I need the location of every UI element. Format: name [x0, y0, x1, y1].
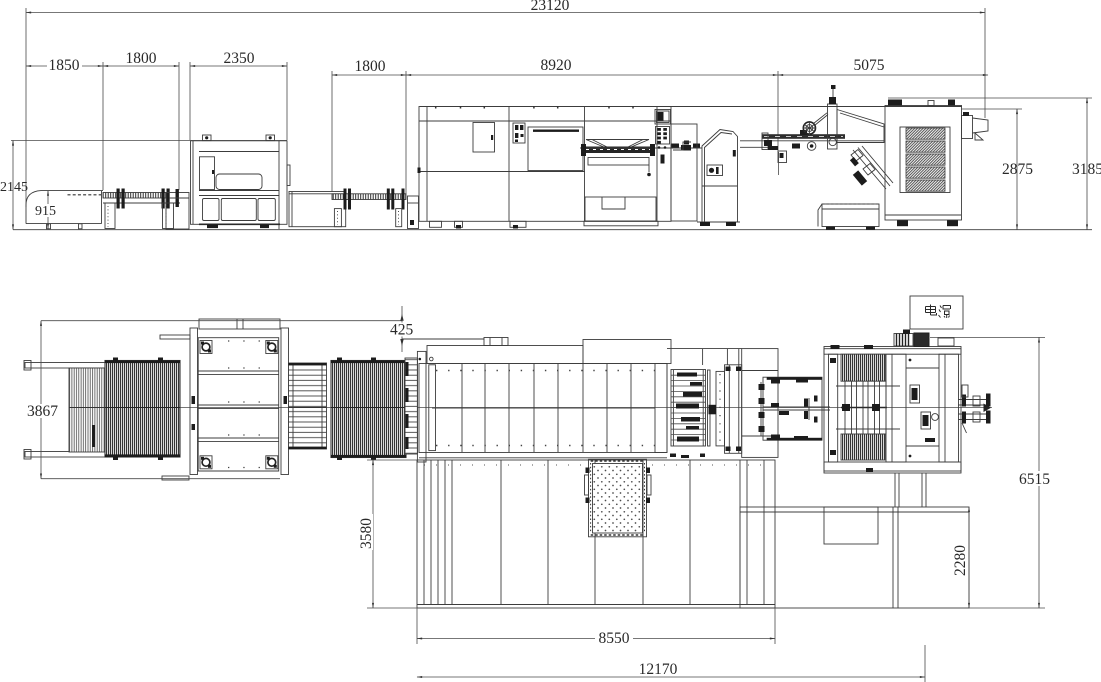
svg-text:8920: 8920 — [541, 57, 572, 74]
svg-text:12170: 12170 — [639, 661, 678, 678]
svg-text:3867: 3867 — [27, 403, 58, 420]
svg-text:3580: 3580 — [358, 518, 375, 549]
svg-text:6515: 6515 — [1019, 471, 1050, 488]
svg-text:1800: 1800 — [355, 58, 386, 75]
svg-text:3185: 3185 — [1072, 161, 1101, 178]
svg-text:23120: 23120 — [531, 0, 570, 14]
svg-text:8550: 8550 — [599, 630, 630, 647]
svg-text:2875: 2875 — [1002, 161, 1033, 178]
svg-text:2280: 2280 — [952, 545, 969, 576]
svg-text:1800: 1800 — [126, 50, 157, 67]
svg-text:1850: 1850 — [49, 57, 80, 74]
svg-text:425: 425 — [390, 322, 414, 339]
svg-text:2145: 2145 — [0, 180, 28, 195]
svg-text:915: 915 — [35, 204, 56, 219]
svg-text:2350: 2350 — [224, 50, 255, 67]
svg-text:5075: 5075 — [854, 57, 885, 74]
